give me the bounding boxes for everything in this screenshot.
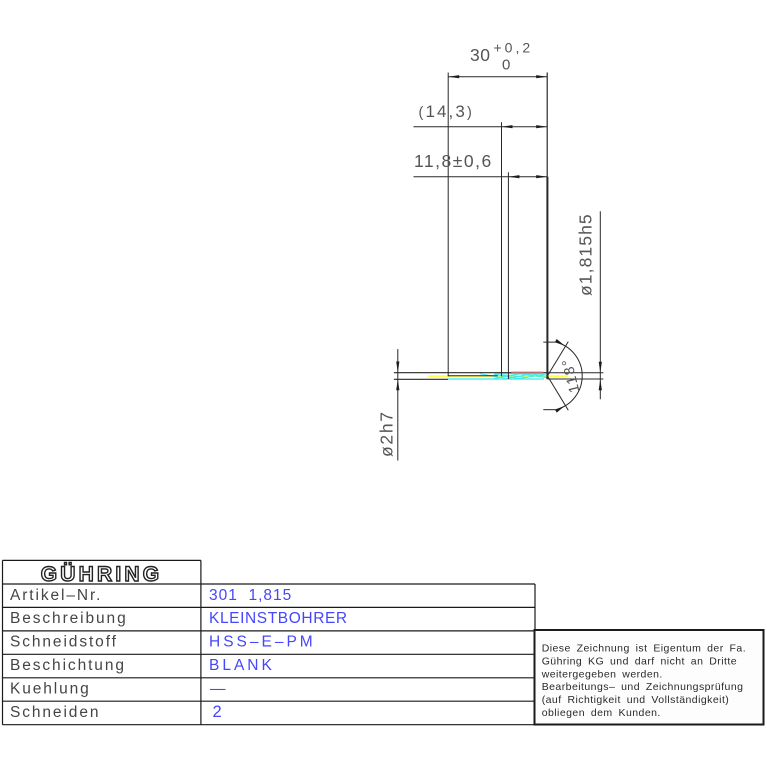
svg-text:Schneidstoff: Schneidstoff xyxy=(10,634,118,651)
svg-text:Diese Zeichnung ist Eigentum d: Diese Zeichnung ist Eigentum der Fa. xyxy=(542,643,746,655)
svg-text:weitergegeben werden.: weitergegeben werden. xyxy=(541,668,663,680)
svg-text:Bearbeitungs– und Zeichnungspr: Bearbeitungs– und Zeichnungsprüfung xyxy=(542,681,744,693)
svg-text:ø2h7: ø2h7 xyxy=(377,410,397,457)
svg-text:Artikel–Nr.: Artikel–Nr. xyxy=(10,587,102,604)
svg-text:(auf Richtigkeit und Vollständ: (auf Richtigkeit und Vollständigkeit) xyxy=(542,694,730,706)
svg-text:KLEINSTBOHRER: KLEINSTBOHRER xyxy=(209,610,348,627)
svg-text:GÜHRING: GÜHRING xyxy=(41,563,163,586)
svg-text:Gühring KG und darf nicht an D: Gühring KG und darf nicht an Dritte xyxy=(542,655,737,667)
svg-text:HSS–E–PM: HSS–E–PM xyxy=(209,634,316,651)
svg-text:+0,2: +0,2 xyxy=(494,40,534,56)
svg-text:Schneiden: Schneiden xyxy=(10,704,100,721)
svg-text:301 1,815: 301 1,815 xyxy=(209,587,292,604)
svg-text:11,8±0,6: 11,8±0,6 xyxy=(414,151,493,171)
svg-text:0: 0 xyxy=(502,57,510,74)
svg-text:Kuehlung: Kuehlung xyxy=(10,681,91,698)
svg-text:Beschreibung: Beschreibung xyxy=(10,610,128,627)
svg-text:—: — xyxy=(210,681,227,698)
svg-text:obliegen dem Kunden.: obliegen dem Kunden. xyxy=(542,707,661,719)
svg-text:BLANK: BLANK xyxy=(209,657,275,674)
svg-text:(14,3): (14,3) xyxy=(419,102,474,121)
svg-text:2: 2 xyxy=(213,703,223,721)
svg-text:ø1,815h5: ø1,815h5 xyxy=(576,213,596,296)
svg-text:Beschichtung: Beschichtung xyxy=(10,657,126,674)
svg-text:30: 30 xyxy=(470,45,490,65)
